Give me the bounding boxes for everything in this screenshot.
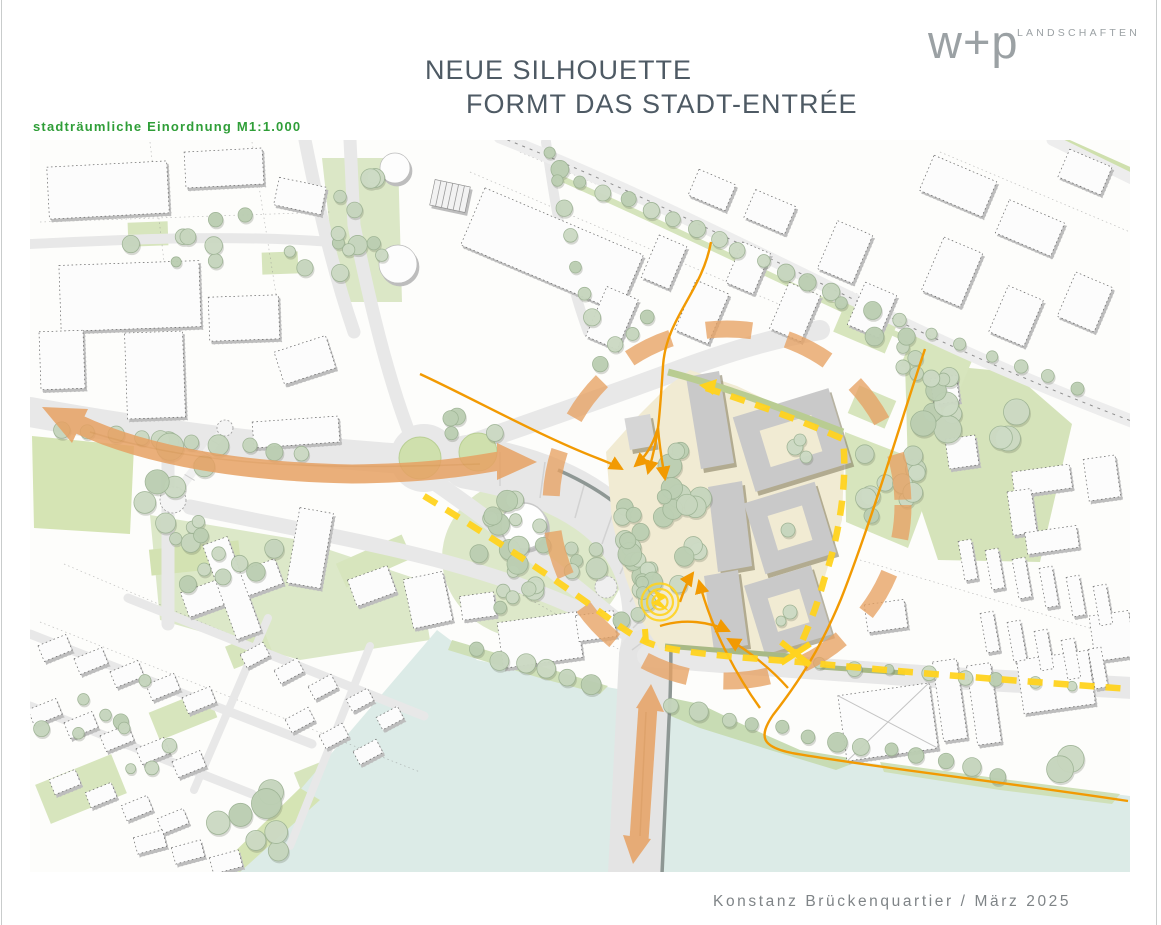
page-border-left: [1, 0, 2, 925]
presentation-page: NEUE SILHOUETTE FORMT DAS STADT-ENTRÉE w…: [0, 0, 1161, 925]
site-plan-map: [30, 140, 1130, 872]
page-title-line1: NEUE SILHOUETTE: [425, 55, 692, 86]
entree-target-marker: [642, 584, 679, 621]
page-border-right: [1156, 0, 1157, 925]
project-caption: Konstanz Brückenquartier / März 2025: [713, 893, 1071, 911]
wp-landschaften-logo: w+p: [928, 18, 1019, 65]
page-title-line2: FORMT DAS STADT-ENTRÉE: [466, 89, 858, 120]
wp-landschaften-wordmark: LANDSCHAFTEN: [1017, 27, 1140, 39]
map-scale-label: stadträumliche Einordnung M1:1.000: [33, 119, 301, 134]
